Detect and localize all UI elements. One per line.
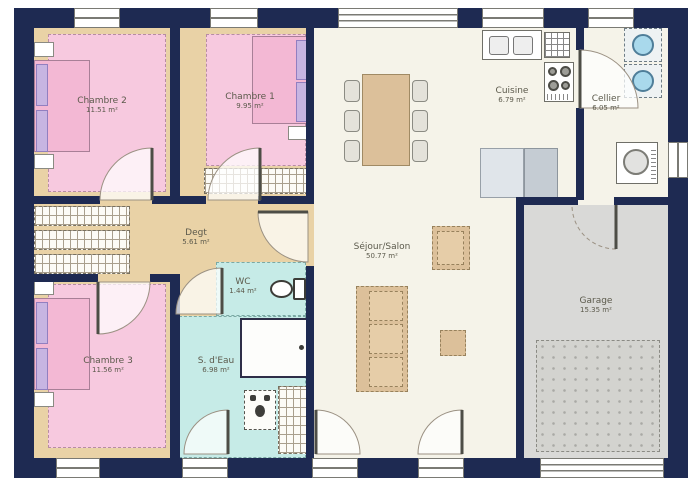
bay-window-sejour (338, 8, 458, 28)
room-name: Chambre 2 (52, 96, 152, 106)
room-area: 5.61 m² (156, 238, 236, 246)
kitchen-island (480, 148, 524, 198)
wardrobe (34, 254, 130, 274)
room-area: 50.77 m² (332, 252, 432, 260)
room-area: 9.95 m² (200, 102, 300, 110)
pillow (36, 348, 48, 390)
wall-segment (306, 266, 314, 458)
nightstand (34, 42, 54, 57)
room-area: 6.98 m² (176, 366, 256, 374)
garage-parking-zone (536, 340, 660, 452)
wardrobe-chambre1 (204, 168, 308, 194)
room-label-sejour: Séjour/Salon 50.77 m² (332, 242, 432, 260)
pillow (36, 302, 48, 344)
room-area: 6.05 m² (566, 104, 646, 112)
entry-door-right (418, 458, 464, 478)
cellier-appliance (624, 64, 662, 98)
wall-segment (576, 108, 584, 200)
chair (412, 140, 428, 162)
room-name: WC (218, 277, 268, 287)
rear-door (182, 458, 228, 478)
chair (344, 140, 360, 162)
wardrobe (34, 230, 130, 250)
window-chambre2 (74, 8, 120, 28)
floor-plan: Chambre 2 11.51 m² Chambre 1 9.95 m² Cha… (0, 0, 700, 493)
room-name: Chambre 3 (58, 356, 158, 366)
bathroom-storage (278, 386, 308, 454)
window-chambre1 (210, 8, 258, 28)
toilet-icon (293, 278, 306, 300)
room-label-chambre2: Chambre 2 11.51 m² (52, 96, 152, 114)
nightstand (34, 392, 54, 407)
wall-segment (170, 28, 180, 196)
window-cellier-side (668, 142, 688, 178)
cellier-appliance (624, 28, 662, 62)
armchair (432, 226, 470, 270)
room-label-chambre3: Chambre 3 11.56 m² (58, 356, 158, 374)
room-name: S. d'Eau (176, 356, 256, 366)
room-name: Séjour/Salon (332, 242, 432, 252)
pillow (36, 64, 48, 106)
room-name: Cuisine (472, 86, 552, 96)
room-name: Degt (156, 228, 236, 238)
nightstand (34, 280, 54, 295)
wall-segment (34, 196, 100, 204)
wall-garage-left (516, 205, 524, 458)
bathroom-sink (244, 390, 276, 430)
wardrobe (34, 206, 130, 226)
kitchen-counter-rack (544, 32, 570, 58)
room-label-cellier: Cellier 6.05 m² (566, 94, 646, 112)
room-area: 11.56 m² (58, 366, 158, 374)
kitchen-island-end (524, 148, 558, 198)
garage-door (540, 458, 664, 478)
room-label-wc: WC 1.44 m² (218, 277, 268, 295)
shower-handle-icon (299, 345, 304, 350)
wall-outer-left (14, 8, 34, 478)
room-name: Garage (556, 296, 636, 306)
room-label-salle-eau: S. d'Eau 6.98 m² (176, 356, 256, 374)
room-area: 1.44 m² (218, 287, 268, 295)
nightstand (34, 154, 54, 169)
kitchen-sink-unit (482, 30, 542, 60)
window-chambre3 (56, 458, 100, 478)
room-area: 15.35 m² (556, 306, 636, 314)
chair (344, 80, 360, 102)
room-label-cuisine: Cuisine 6.79 m² (472, 86, 552, 104)
dining-table (362, 74, 410, 166)
entry-door-left (312, 458, 358, 478)
wall-segment (152, 196, 180, 204)
room-area: 11.51 m² (52, 106, 152, 114)
wall-segment (576, 28, 584, 50)
chair (344, 110, 360, 132)
pillow (36, 110, 48, 152)
window-cellier (588, 8, 634, 28)
wall-garage-top (614, 197, 668, 205)
chair (412, 110, 428, 132)
wall-segment (180, 196, 206, 204)
window-cuisine (482, 8, 544, 28)
wall-segment (306, 28, 314, 204)
room-area: 6.79 m² (472, 96, 552, 104)
wall-outer-right (668, 8, 688, 478)
washing-machine-icon (616, 142, 658, 184)
chair (412, 80, 428, 102)
room-label-chambre1: Chambre 1 9.95 m² (200, 92, 300, 110)
room-name: Chambre 1 (200, 92, 300, 102)
room-label-degt: Degt 5.61 m² (156, 228, 236, 246)
wall-garage-top (516, 197, 578, 205)
toilet-bowl-icon (270, 280, 293, 298)
sofa (356, 286, 408, 392)
room-name: Cellier (566, 94, 646, 104)
side-table (440, 330, 466, 356)
room-label-garage: Garage 15.35 m² (556, 296, 636, 314)
wall-segment (34, 274, 98, 282)
